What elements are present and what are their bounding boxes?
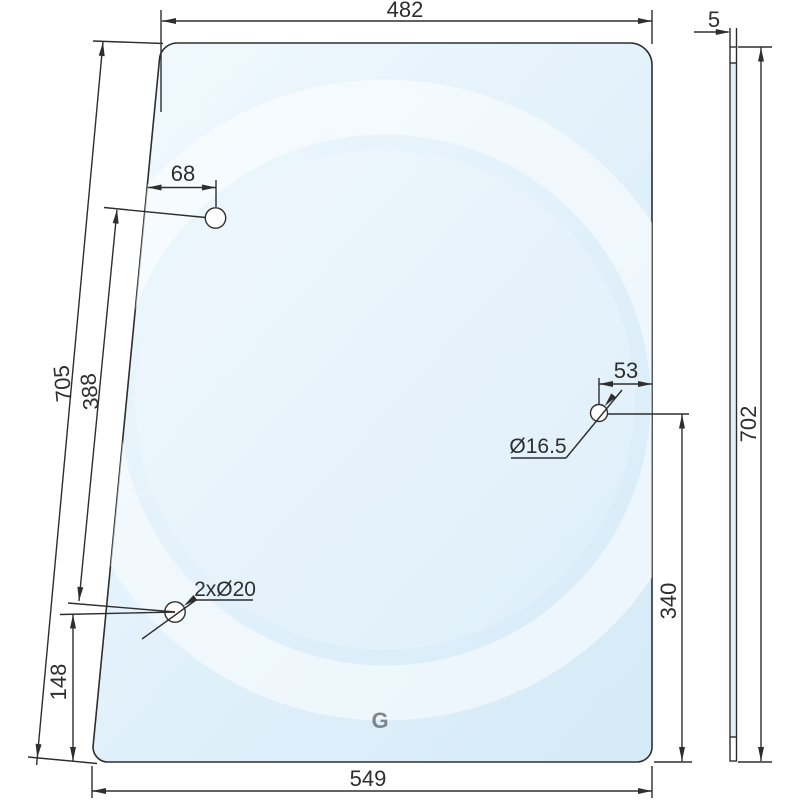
dim-label: 340 — [656, 583, 681, 620]
dim-label: 53 — [614, 358, 638, 383]
side-view-glass-fill — [731, 63, 736, 737]
dim-label: 5 — [708, 7, 720, 32]
arrowhead — [70, 615, 76, 629]
arrowhead — [638, 788, 652, 794]
arrowhead — [758, 747, 764, 761]
arrowhead — [638, 18, 652, 24]
technical-drawing-page: G 482 549 705 388 — [0, 0, 800, 800]
arrowhead — [162, 18, 176, 24]
dim-label: 148 — [46, 664, 71, 701]
dim-bottom-width: 549 — [92, 766, 652, 798]
dim-label: 702 — [736, 406, 761, 443]
glass-pane-dimension-drawing: G 482 549 705 388 — [0, 0, 800, 800]
arrowhead — [679, 415, 685, 429]
arrowhead — [92, 788, 106, 794]
hole-top-left — [205, 208, 225, 228]
dim-label: 705 — [48, 364, 76, 403]
dim-thickness: 5 — [694, 7, 730, 35]
hole-diameter-label: Ø16.5 — [509, 435, 566, 458]
dim-label: 68 — [171, 161, 195, 186]
dim-label: 482 — [387, 0, 424, 22]
ext-line — [28, 757, 97, 764]
watermark-letter-g: G — [371, 708, 388, 733]
side-view — [730, 28, 737, 761]
arrowhead — [679, 747, 685, 761]
front-view: G — [92, 43, 678, 762]
dim-side-height: 702 — [736, 47, 772, 762]
dim-label: 388 — [75, 372, 103, 411]
hole-diameter-label: 2xØ20 — [194, 578, 256, 601]
arrowhead — [758, 48, 764, 62]
dim-label: 549 — [350, 766, 387, 791]
watermark: G — [92, 107, 678, 733]
arrowhead — [70, 747, 76, 761]
